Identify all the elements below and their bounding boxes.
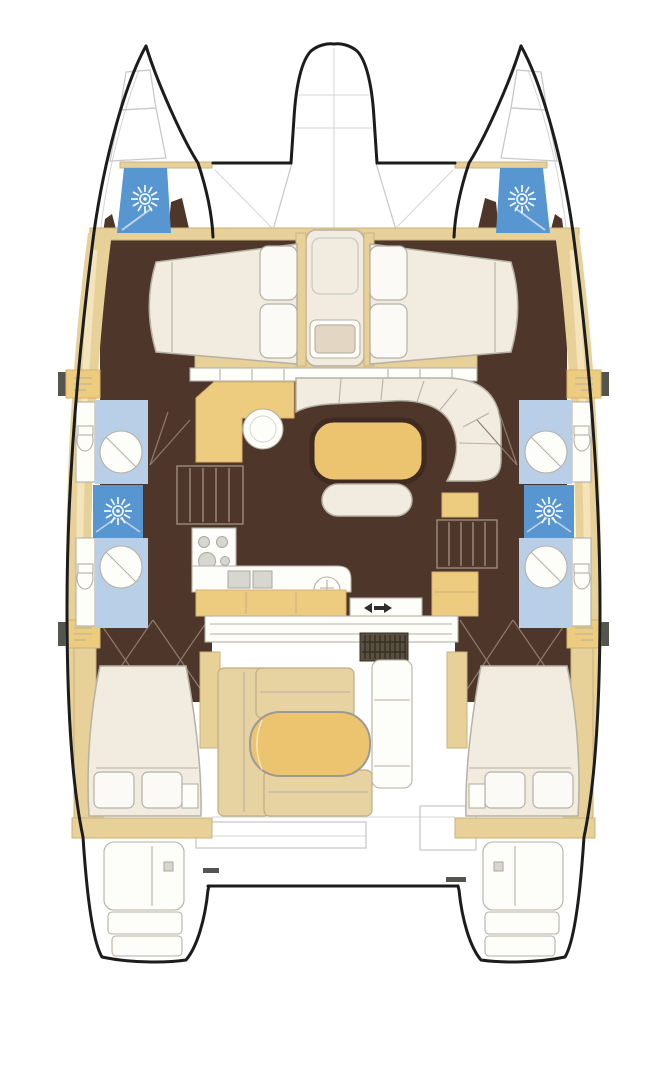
sliding-door-band [205, 616, 458, 642]
center-forepeak-berth [306, 230, 364, 366]
galley-appliance-1 [228, 571, 250, 588]
starboard-cabinet-lower [432, 572, 478, 616]
starboard-cabinet-upper [442, 493, 478, 517]
helm-seat-module [372, 660, 412, 788]
foredeck-sun-hatch-port [117, 168, 171, 233]
port-fwd-pillow-1 [260, 246, 297, 300]
starboard-aft-pillow-2 [533, 772, 573, 808]
starboard-midship-sun-hatch [524, 485, 574, 538]
galley-round-sink [243, 409, 283, 449]
forepeak-seat-cushion [315, 325, 355, 353]
port-transom-steps [104, 842, 184, 956]
port-aft-foot-shelf [72, 818, 212, 838]
port-aft-pillow-2 [142, 772, 182, 808]
starboard-aft-side-table [469, 784, 485, 808]
starboard-transom-steps [483, 842, 563, 956]
starboard-deck-locker-fwd [567, 370, 601, 398]
port-winch-mark-fwd [58, 372, 66, 396]
starboard-aft-foot-shelf [455, 818, 595, 838]
catamaran-floorplan [0, 0, 667, 1080]
salon-dining-table [312, 420, 424, 482]
galley-cabinet-front [196, 590, 346, 616]
starboard-fwd-pillow-2 [370, 304, 407, 358]
port-deck-locker-fwd [66, 370, 100, 398]
engine-hatch-grate [360, 633, 408, 661]
starboard-winch-mark-fwd [601, 372, 609, 396]
starboard-fwd-pillow-1 [370, 246, 407, 300]
cockpit-sofa-forward [256, 668, 354, 718]
port-aft-inboard-shelf [200, 652, 220, 748]
port-davit-mark [203, 868, 219, 873]
floorplan-page [0, 0, 667, 1080]
port-fwd-pillow-2 [260, 304, 297, 358]
starboard-aft-pillow-1 [485, 772, 525, 808]
port-aft-side-table [182, 784, 198, 808]
port-midship-sun-hatch [93, 485, 143, 538]
galley-appliance-2 [253, 571, 272, 588]
port-aft-pillow-1 [94, 772, 134, 808]
starboard-davit-mark [446, 877, 466, 882]
foredeck-sun-hatch-starboard [496, 168, 550, 233]
starboard-aft-inboard-shelf [447, 652, 467, 748]
cockpit-oval-table [250, 712, 370, 776]
salon-bench-seat [322, 484, 412, 516]
starboard-winch-mark-aft [601, 622, 609, 646]
port-winch-mark-aft [58, 622, 66, 646]
